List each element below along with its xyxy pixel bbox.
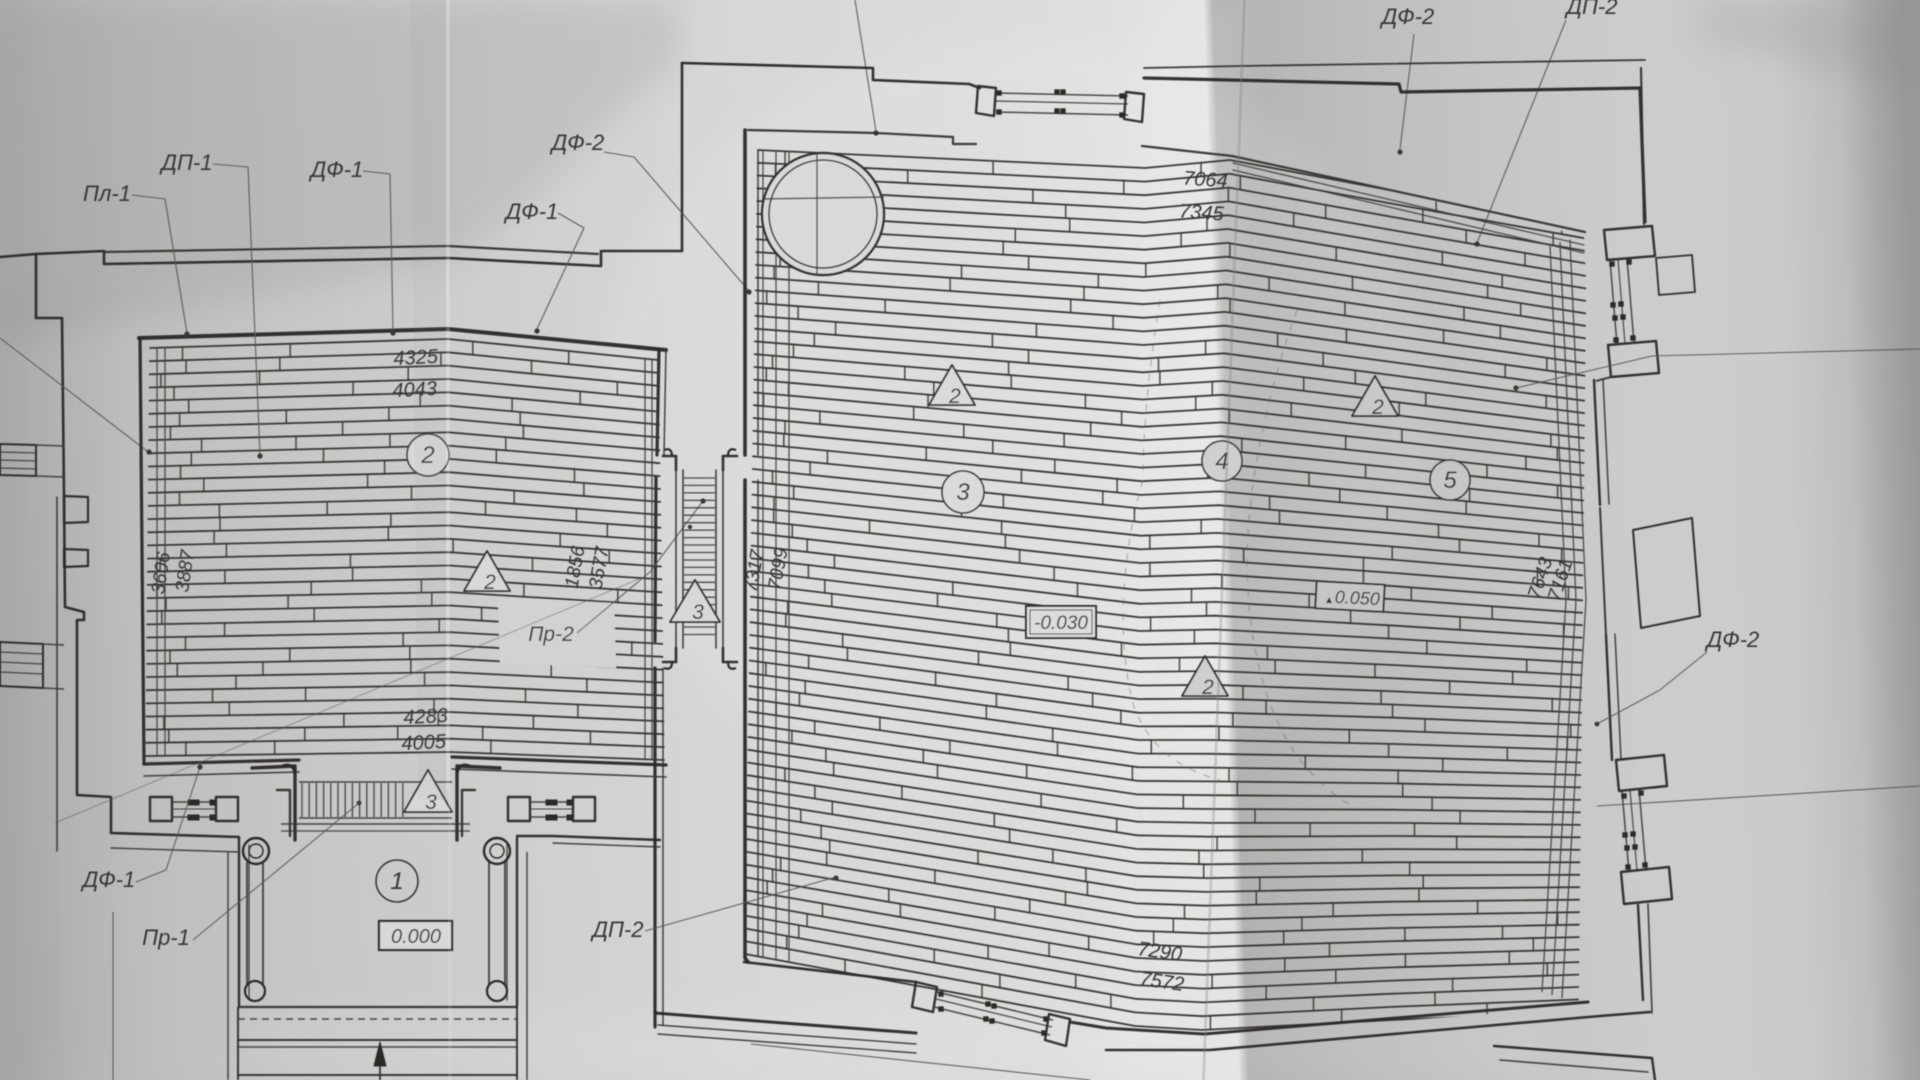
svg-text:ДП-2: ДП-2: [590, 917, 644, 942]
svg-text:2: 2: [483, 571, 496, 594]
svg-text:Пр-1: Пр-1: [142, 925, 190, 950]
svg-text:ДФ-2: ДФ-2: [549, 130, 605, 155]
svg-text:ДП-1: ДП-1: [159, 150, 213, 175]
svg-text:1: 1: [390, 868, 403, 895]
svg-text:7345: 7345: [1178, 200, 1225, 225]
svg-text:3: 3: [956, 479, 970, 506]
svg-text:0.050: 0.050: [1334, 587, 1380, 609]
svg-text:ДФ-2: ДФ-2: [1704, 627, 1760, 652]
svg-text:ДФ-2: ДФ-2: [1379, 4, 1435, 29]
svg-text:ДФ-1: ДФ-1: [308, 157, 364, 182]
svg-text:2: 2: [1371, 396, 1384, 419]
svg-text:5: 5: [1443, 467, 1457, 494]
svg-text:-0.030: -0.030: [1034, 613, 1088, 634]
svg-text:▲: ▲: [1324, 595, 1334, 607]
svg-text:ДФ-1: ДФ-1: [80, 867, 136, 892]
svg-text:2: 2: [1201, 676, 1214, 699]
svg-text:Пр-2: Пр-2: [528, 623, 574, 646]
svg-text:ДФ-1: ДФ-1: [503, 199, 559, 224]
svg-text:7064: 7064: [1182, 167, 1228, 192]
svg-text:3: 3: [692, 601, 704, 624]
svg-text:Пл-1: Пл-1: [83, 181, 131, 206]
svg-text:0.000: 0.000: [391, 926, 441, 948]
svg-text:2: 2: [948, 385, 961, 408]
svg-text:ДП-2: ДП-2: [1564, 0, 1618, 19]
